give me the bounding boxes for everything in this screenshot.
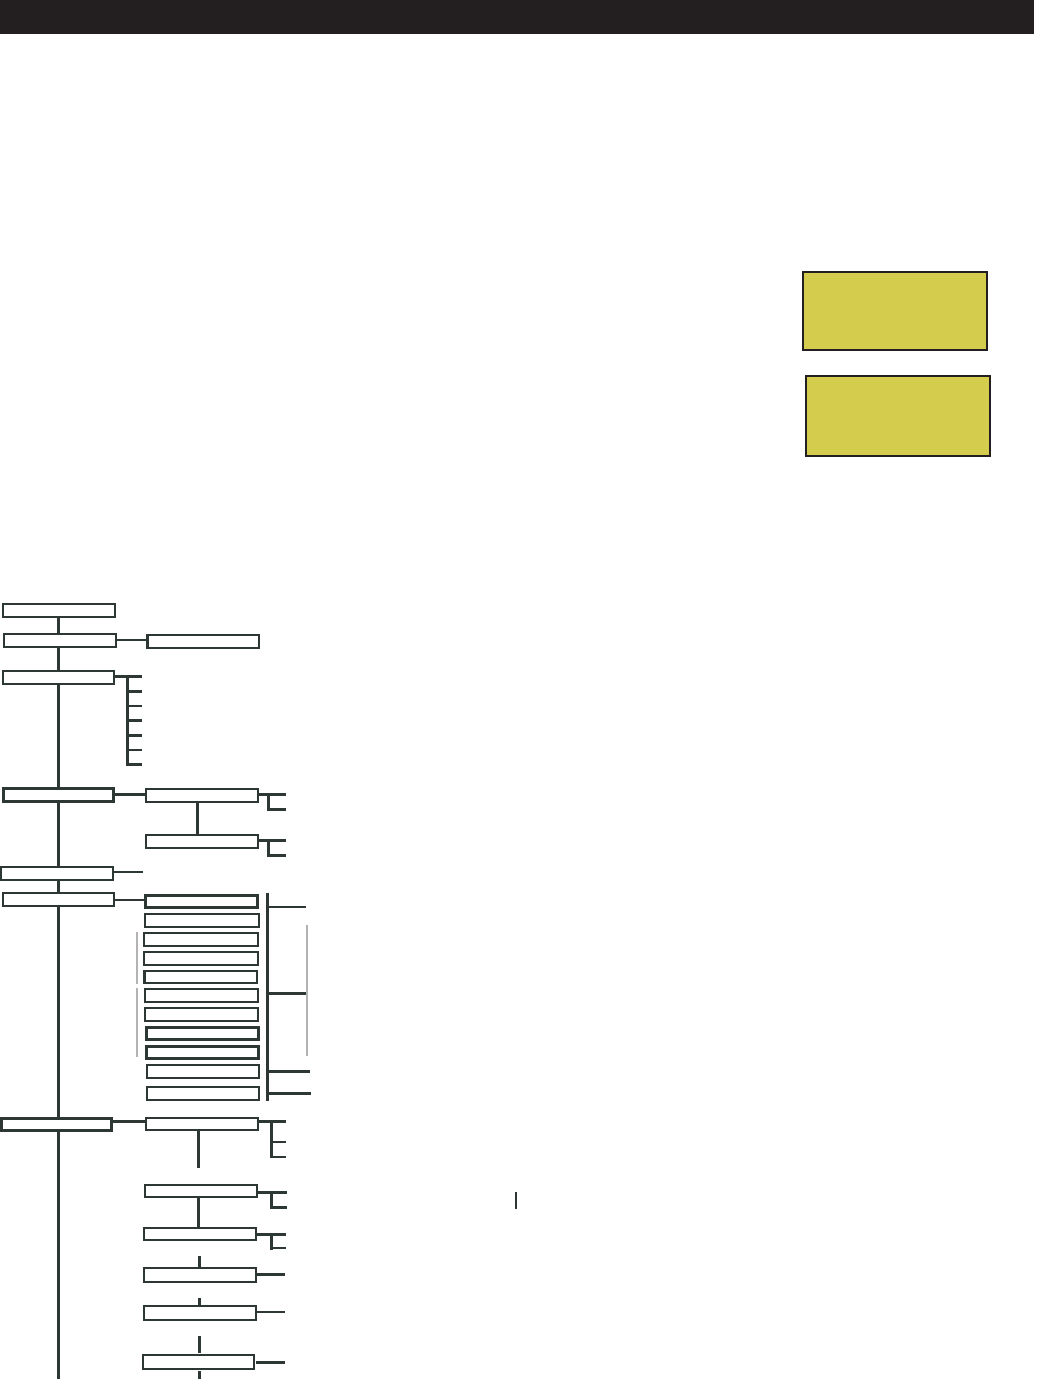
stack-item-4 — [143, 951, 259, 966]
child4-right-line — [257, 1273, 285, 1276]
stack-item-11 — [146, 1086, 260, 1101]
floating-tick — [515, 1192, 517, 1209]
child5-right-line — [257, 1311, 285, 1313]
bracket4-tick-2 — [270, 1156, 286, 1158]
stub-above-child5 — [198, 1298, 201, 1305]
node-level4-child2 — [145, 834, 259, 849]
node-level7-child6 — [142, 1354, 255, 1370]
stack-item-9 — [145, 1045, 260, 1060]
bracket3-tick — [267, 854, 286, 857]
node-level7-child2 — [144, 1184, 258, 1198]
node-level7-child4 — [143, 1267, 257, 1283]
stack-item-6 — [144, 988, 259, 1003]
bracket1-tick-1 — [126, 690, 142, 693]
node-level7-child3 — [143, 1227, 257, 1241]
node-level6 — [2, 892, 115, 907]
stack-gray-left-2 — [136, 988, 138, 1057]
stack-item-1 — [144, 894, 259, 909]
stack-item-8 — [145, 1026, 260, 1041]
highlight-box-2 — [805, 375, 991, 457]
stack-item-7 — [144, 1007, 259, 1022]
bracket4-tick-1 — [270, 1141, 286, 1143]
node-level5 — [0, 866, 114, 881]
scanned-manual-page — [0, 0, 1046, 1379]
bracket1-tick-5 — [126, 749, 142, 751]
bracket4-vertical — [270, 1120, 273, 1158]
bracket3-horizontal — [259, 839, 286, 842]
stack-gray-right — [306, 925, 308, 1056]
node-level2 — [3, 633, 117, 648]
stack-tick-3 — [266, 1070, 310, 1073]
bracket1-tick-6 — [126, 763, 142, 766]
node-level7-child1 — [145, 1117, 259, 1131]
stack-tick-1 — [269, 906, 306, 908]
bracket2-horizontal — [259, 793, 286, 796]
node-level4 — [2, 787, 115, 803]
node-level7-child5 — [143, 1305, 257, 1321]
node-level2-child — [146, 634, 260, 649]
node-level7 — [0, 1117, 113, 1132]
connector-level2 — [116, 639, 147, 641]
stack-item-10 — [146, 1064, 260, 1079]
stack-item-3 — [143, 932, 259, 947]
bracket5-tick — [270, 1206, 287, 1209]
connector-level5-stub — [114, 871, 143, 873]
stack-tick-2 — [266, 992, 308, 995]
node-level3 — [2, 670, 115, 685]
stack-item-5 — [143, 970, 258, 984]
stack-item-2 — [144, 913, 260, 928]
stub-above-child6 — [198, 1336, 201, 1353]
node-level4-child1 — [145, 788, 259, 803]
stack-tick-4 — [266, 1092, 311, 1095]
bracket1-tick-3 — [126, 719, 142, 722]
bracket6-tick — [270, 1247, 286, 1249]
connector-child2-child3 — [197, 1198, 200, 1227]
connector-level4 — [115, 793, 145, 796]
stack-gray-left-1 — [136, 932, 138, 984]
header-bar — [0, 0, 1034, 34]
stub-below-child6 — [198, 1371, 201, 1379]
stub-above-child4 — [198, 1256, 201, 1267]
child1-down-stub — [197, 1131, 200, 1168]
bracket1-tick-4 — [126, 734, 142, 737]
connector-level7 — [113, 1120, 145, 1123]
bracket1-tick-2 — [126, 705, 142, 707]
connector-level6 — [115, 899, 144, 901]
bracket2-tick — [267, 808, 286, 811]
child6-right-line — [256, 1361, 285, 1364]
highlight-box-1 — [802, 271, 988, 351]
node-root — [2, 603, 116, 618]
connector-child1-child2 — [196, 803, 199, 834]
trunk-line — [57, 610, 60, 1379]
